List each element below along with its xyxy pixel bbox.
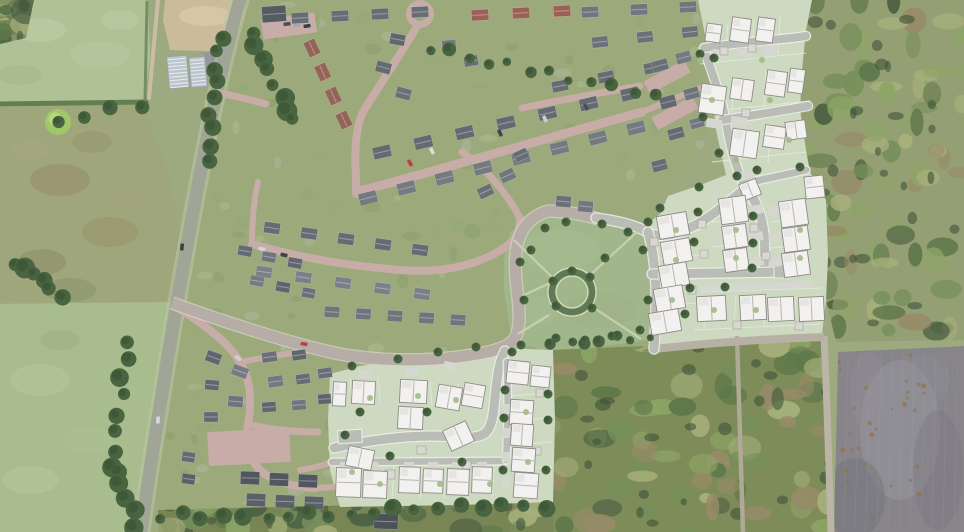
aerial-site-plan	[0, 0, 964, 532]
haze-overlay	[0, 0, 964, 532]
aerial-masterplan-screenshot	[0, 0, 964, 532]
